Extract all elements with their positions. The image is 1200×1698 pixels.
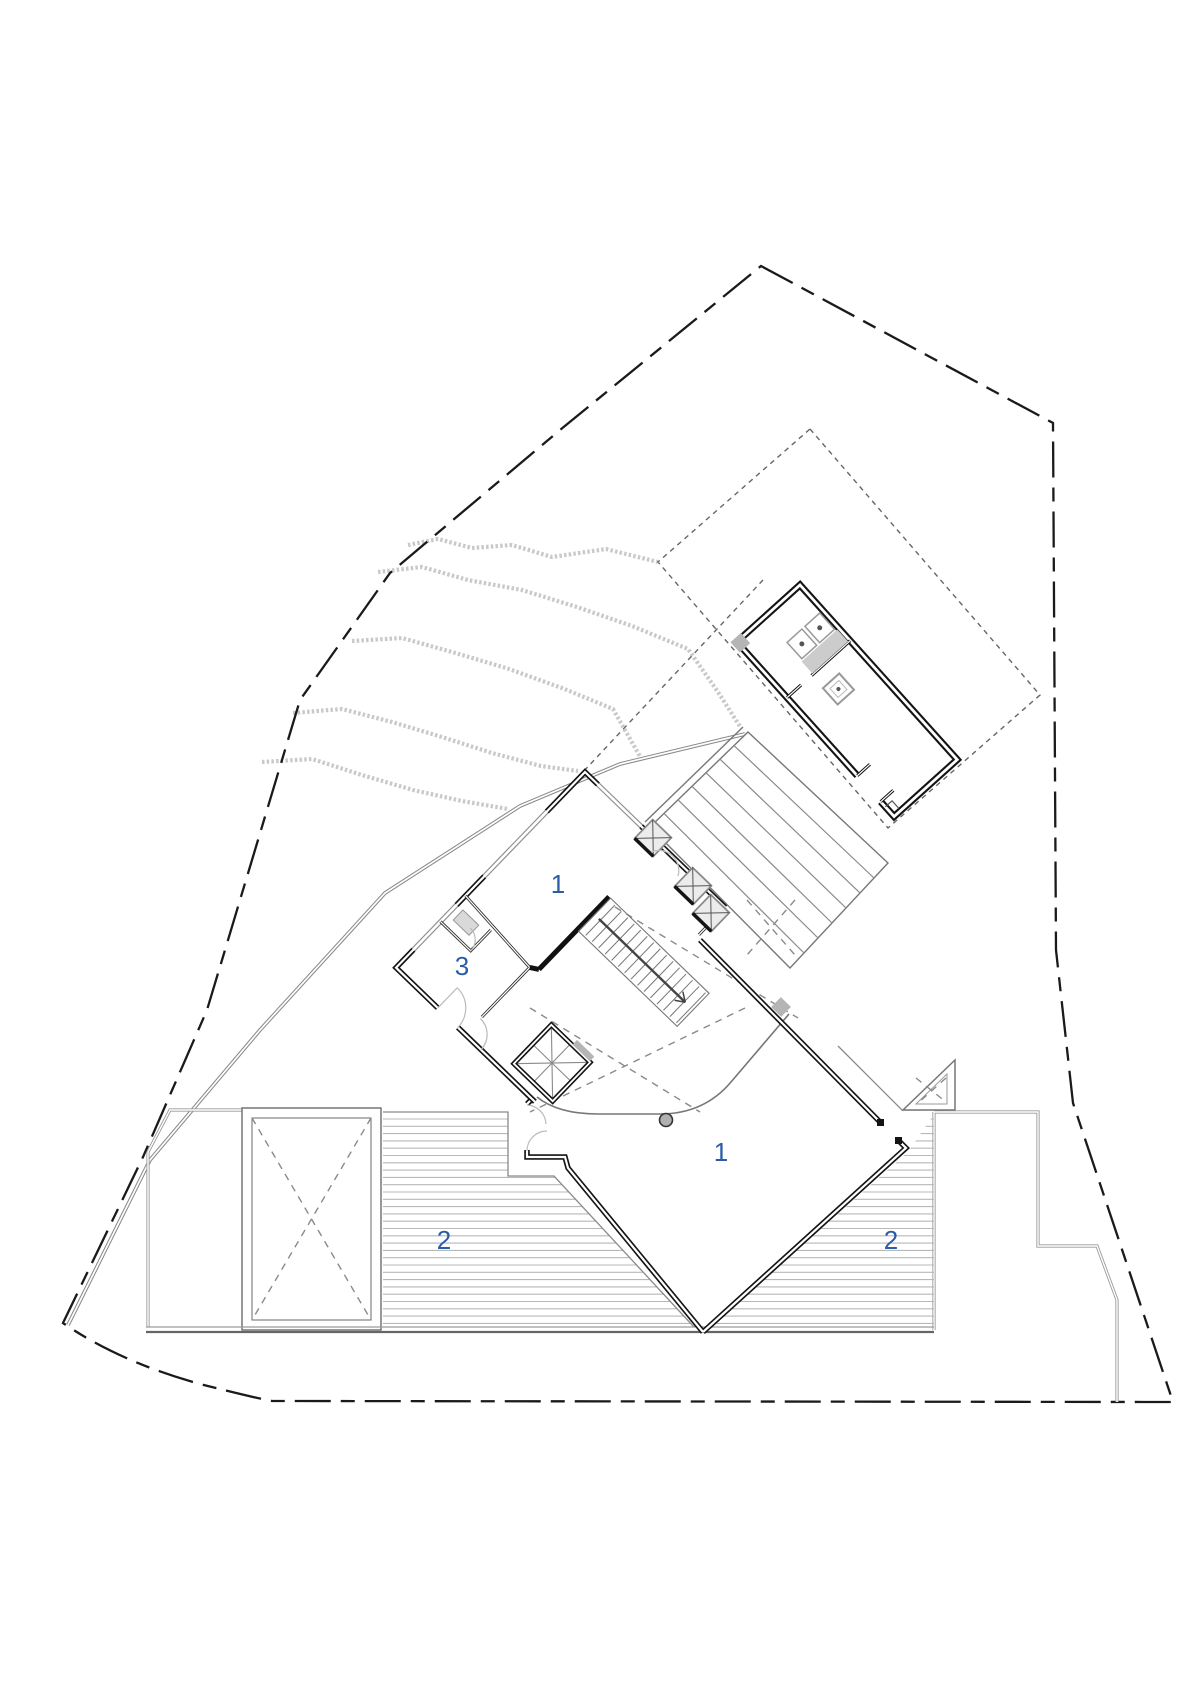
column-dot [660, 1114, 673, 1127]
deck-label-right-2: 2 [884, 1225, 898, 1255]
skylight-opening [242, 1108, 381, 1330]
room-label-lower-1: 1 [714, 1137, 728, 1167]
room-label-upper-1: 1 [551, 869, 565, 899]
door-jamb [895, 1137, 902, 1144]
floor-plan-page: 1 3 1 2 2 [0, 0, 1200, 1698]
paper-background [0, 0, 1200, 1698]
door-jamb [877, 1119, 884, 1126]
room-label-3: 3 [455, 951, 469, 981]
deck-label-left-2: 2 [437, 1225, 451, 1255]
floor-plan-drawing: 1 3 1 2 2 [0, 0, 1200, 1698]
